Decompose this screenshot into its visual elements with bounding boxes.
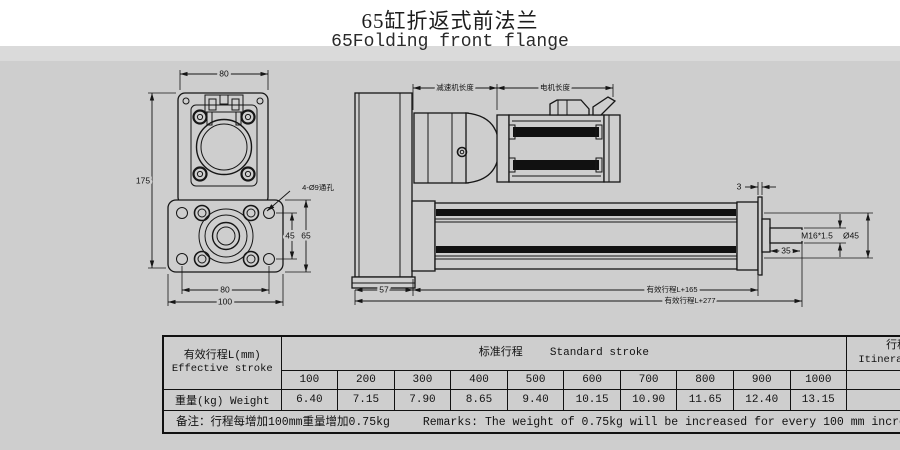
weight-value: 11.65: [677, 389, 734, 410]
weight-value: 8.65: [451, 389, 508, 410]
dim-rod-length: 35: [781, 245, 791, 255]
standard-stroke-header: 标准行程 Standard stroke: [281, 336, 846, 370]
dim-total-height: 175: [136, 175, 150, 185]
hole-note-label: 4-Ø9通孔: [302, 182, 334, 192]
suggestion-header-en: Itinerary suggestion: [847, 354, 900, 368]
suggestion-weight: ...: [847, 389, 900, 410]
spec-table: 有效行程L(mm) Effective stroke 标准行程 Standard…: [162, 335, 900, 434]
weight-value: 7.90: [394, 389, 451, 410]
dim-hole-span-v: 45: [285, 230, 295, 240]
rod-collar: [762, 219, 770, 252]
stroke-value: 600: [564, 370, 621, 389]
dim-plate-thickness: 3: [737, 181, 742, 191]
front-flange-plate: [168, 200, 283, 272]
dim-reducer-length: 减速机长度: [436, 82, 474, 92]
weight-header: 重量(kg) Weight: [163, 389, 281, 410]
effective-stroke-en: Effective stroke: [164, 363, 281, 377]
dim-rod-thread: M16*1.5: [801, 230, 833, 240]
standard-stroke-zh: 标准行程: [479, 347, 523, 359]
remarks-zh: 备注：行程每增加100mm重量增加0.75kg: [176, 416, 390, 429]
dim-stroke-277: 有效行程L+277: [664, 295, 715, 305]
effective-stroke-header: 有效行程L(mm) Effective stroke: [163, 336, 281, 389]
dim-plate-width: 100: [218, 296, 232, 306]
suggestion-value: ≦1000: [847, 370, 900, 389]
side-view: 减速机长度 电机长度 3 Ø45 M16*1.5 35 57: [352, 82, 873, 307]
front-view: 4-Ø9通孔 80 175 45 65 80: [136, 68, 334, 306]
remarks-en: Remarks: The weight of 0.75kg will be in…: [423, 416, 900, 429]
motor-cable-gland: [593, 97, 615, 115]
motor-body: [497, 97, 620, 182]
suggestion-header: 行程建议(mm) Itinerary suggestion: [847, 336, 900, 370]
stroke-value: 100: [281, 370, 338, 389]
dim-stroke-165: 有效行程L+165: [646, 284, 697, 294]
cylinder-front-cap: [737, 202, 758, 270]
effective-stroke-zh: 有效行程L(mm): [164, 349, 281, 363]
motor-connector: [550, 100, 589, 115]
weight-value: 6.40: [281, 389, 338, 410]
weight-value: 9.40: [507, 389, 564, 410]
dim-motor-length: 电机长度: [540, 82, 570, 92]
rear-housing-plate: [355, 93, 412, 277]
cylinder-rear-block: [412, 201, 435, 271]
weight-value: 10.15: [564, 389, 621, 410]
dim-top-width: 80: [219, 68, 229, 78]
stroke-value: 900: [733, 370, 790, 389]
weight-value: 10.90: [620, 389, 677, 410]
stroke-value: 700: [620, 370, 677, 389]
standard-stroke-en: Standard stroke: [550, 347, 649, 359]
piston-rod: [770, 228, 802, 243]
dim-hole-span-h: 80: [220, 284, 230, 294]
suggestion-header-zh: 行程建议(mm): [847, 339, 900, 353]
remarks-row: 备注：行程每增加100mm重量增加0.75kg Remarks: The wei…: [163, 410, 900, 433]
dim-plate-height: 65: [301, 230, 311, 240]
cylinder-body: [412, 197, 802, 275]
stroke-value: 500: [507, 370, 564, 389]
weight-value: 12.40: [733, 389, 790, 410]
dim-rear-width: 57: [379, 284, 389, 294]
weight-row: 重量(kg) Weight 6.407.157.908.659.4010.151…: [163, 389, 900, 410]
stroke-value: 200: [338, 370, 395, 389]
weight-value: 7.15: [338, 389, 395, 410]
weight-value: 13.15: [790, 389, 847, 410]
reducer-housing: [414, 113, 499, 183]
stroke-value: 1000: [790, 370, 847, 389]
stroke-value: 400: [451, 370, 508, 389]
stroke-value: 800: [677, 370, 734, 389]
stroke-value: 300: [394, 370, 451, 389]
dim-flange-diameter: Ø45: [843, 230, 859, 240]
